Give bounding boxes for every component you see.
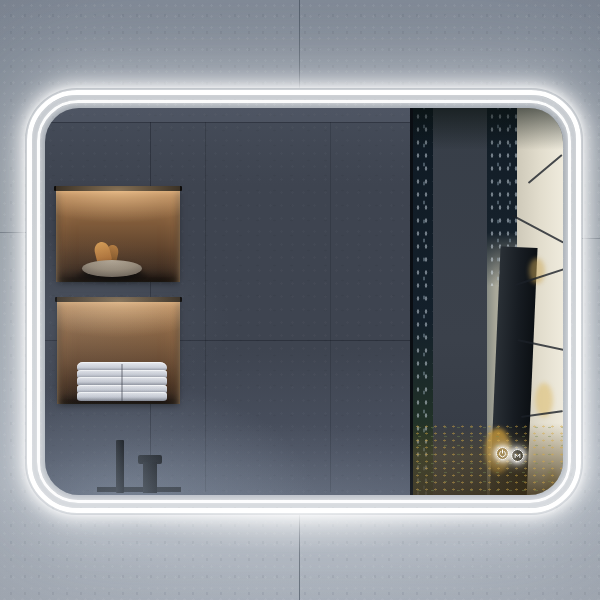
reflected-grout-seam xyxy=(45,122,413,123)
reflected-grout-seam xyxy=(330,122,331,492)
forest-canopy-shadow xyxy=(413,108,563,150)
wall-niche-bottom xyxy=(57,297,180,404)
tree-branch xyxy=(528,154,563,183)
counter-edge xyxy=(97,487,181,492)
power-button[interactable] xyxy=(496,447,509,460)
reflected-grout-seam xyxy=(205,122,206,492)
power-icon xyxy=(498,449,507,458)
forest-floor xyxy=(413,423,563,495)
faucet-handle xyxy=(116,440,124,493)
tree-branch xyxy=(512,214,563,243)
stone-bowl xyxy=(82,260,142,277)
wall-grout-seam xyxy=(299,515,300,600)
defog-icon xyxy=(513,451,522,460)
wall-grout-seam xyxy=(582,238,600,239)
led-mirror xyxy=(25,88,583,515)
wall-grout-seam xyxy=(299,0,300,88)
forest-view xyxy=(413,108,563,495)
towel-stack xyxy=(77,364,167,402)
wall-niche-top xyxy=(56,186,180,282)
led-glow-on-wall xyxy=(70,512,530,567)
defog-button[interactable] xyxy=(511,449,524,462)
bathroom-scene xyxy=(0,0,600,600)
faucet-spout xyxy=(143,462,157,493)
wall-grout-seam xyxy=(0,232,26,233)
reflected-ceiling-band xyxy=(45,108,413,122)
towel-fold-line xyxy=(121,364,123,402)
mirror-glass xyxy=(45,108,563,495)
